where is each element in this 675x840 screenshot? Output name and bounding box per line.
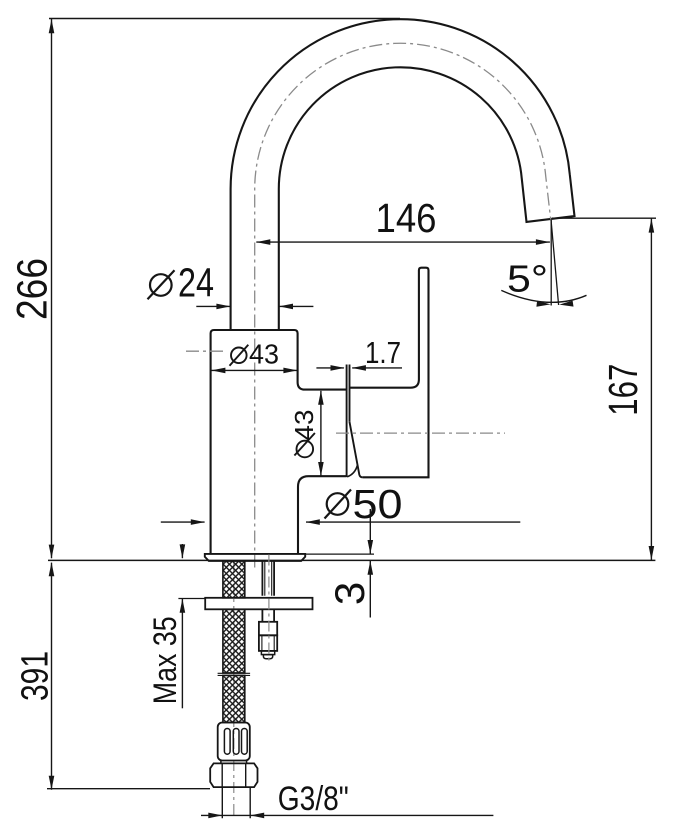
svg-text:Max 35: Max 35 xyxy=(147,616,183,704)
svg-text:391: 391 xyxy=(15,651,57,701)
svg-text:3: 3 xyxy=(326,582,373,605)
svg-text:146: 146 xyxy=(376,195,437,241)
svg-text:G3/8": G3/8" xyxy=(278,780,349,818)
svg-text:1.7: 1.7 xyxy=(365,335,401,370)
svg-text:167: 167 xyxy=(600,364,646,416)
svg-text:43: 43 xyxy=(249,339,279,370)
svg-text:266: 266 xyxy=(9,258,57,320)
svg-text:24: 24 xyxy=(178,260,214,306)
svg-text:50: 50 xyxy=(353,481,403,527)
svg-text:43: 43 xyxy=(289,410,319,441)
svg-text:5°: 5° xyxy=(507,259,548,301)
